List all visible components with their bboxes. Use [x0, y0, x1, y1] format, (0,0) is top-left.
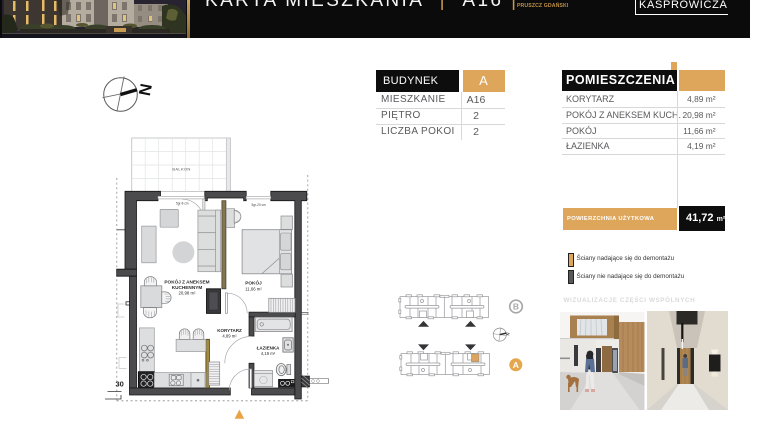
svg-text:11,66 m²: 11,66 m²: [245, 287, 262, 292]
svg-text:ŁAZIENKA: ŁAZIENKA: [257, 345, 280, 350]
svg-text:POKÓJ: POKÓJ: [245, 279, 262, 286]
svg-text:KUCHENNYM: KUCHENNYM: [172, 285, 203, 290]
svg-text:KORYTARZ: KORYTARZ: [217, 328, 242, 333]
svg-text:B: B: [513, 302, 519, 312]
svg-text:5gr-8 cm: 5gr-8 cm: [176, 202, 189, 206]
svg-text:A: A: [513, 360, 519, 370]
svg-text:4,19 m²: 4,19 m²: [261, 351, 276, 356]
svg-text:4,89 m²: 4,89 m²: [222, 334, 237, 339]
svg-text:5gr-20 cm: 5gr-20 cm: [252, 203, 267, 207]
svg-text:30: 30: [116, 380, 124, 389]
svg-text:BALKON: BALKON: [172, 166, 190, 171]
svg-text:20,98 m²: 20,98 m²: [179, 291, 197, 296]
svg-text:POKÓJ Z ANEKSEM: POKÓJ Z ANEKSEM: [164, 277, 209, 284]
